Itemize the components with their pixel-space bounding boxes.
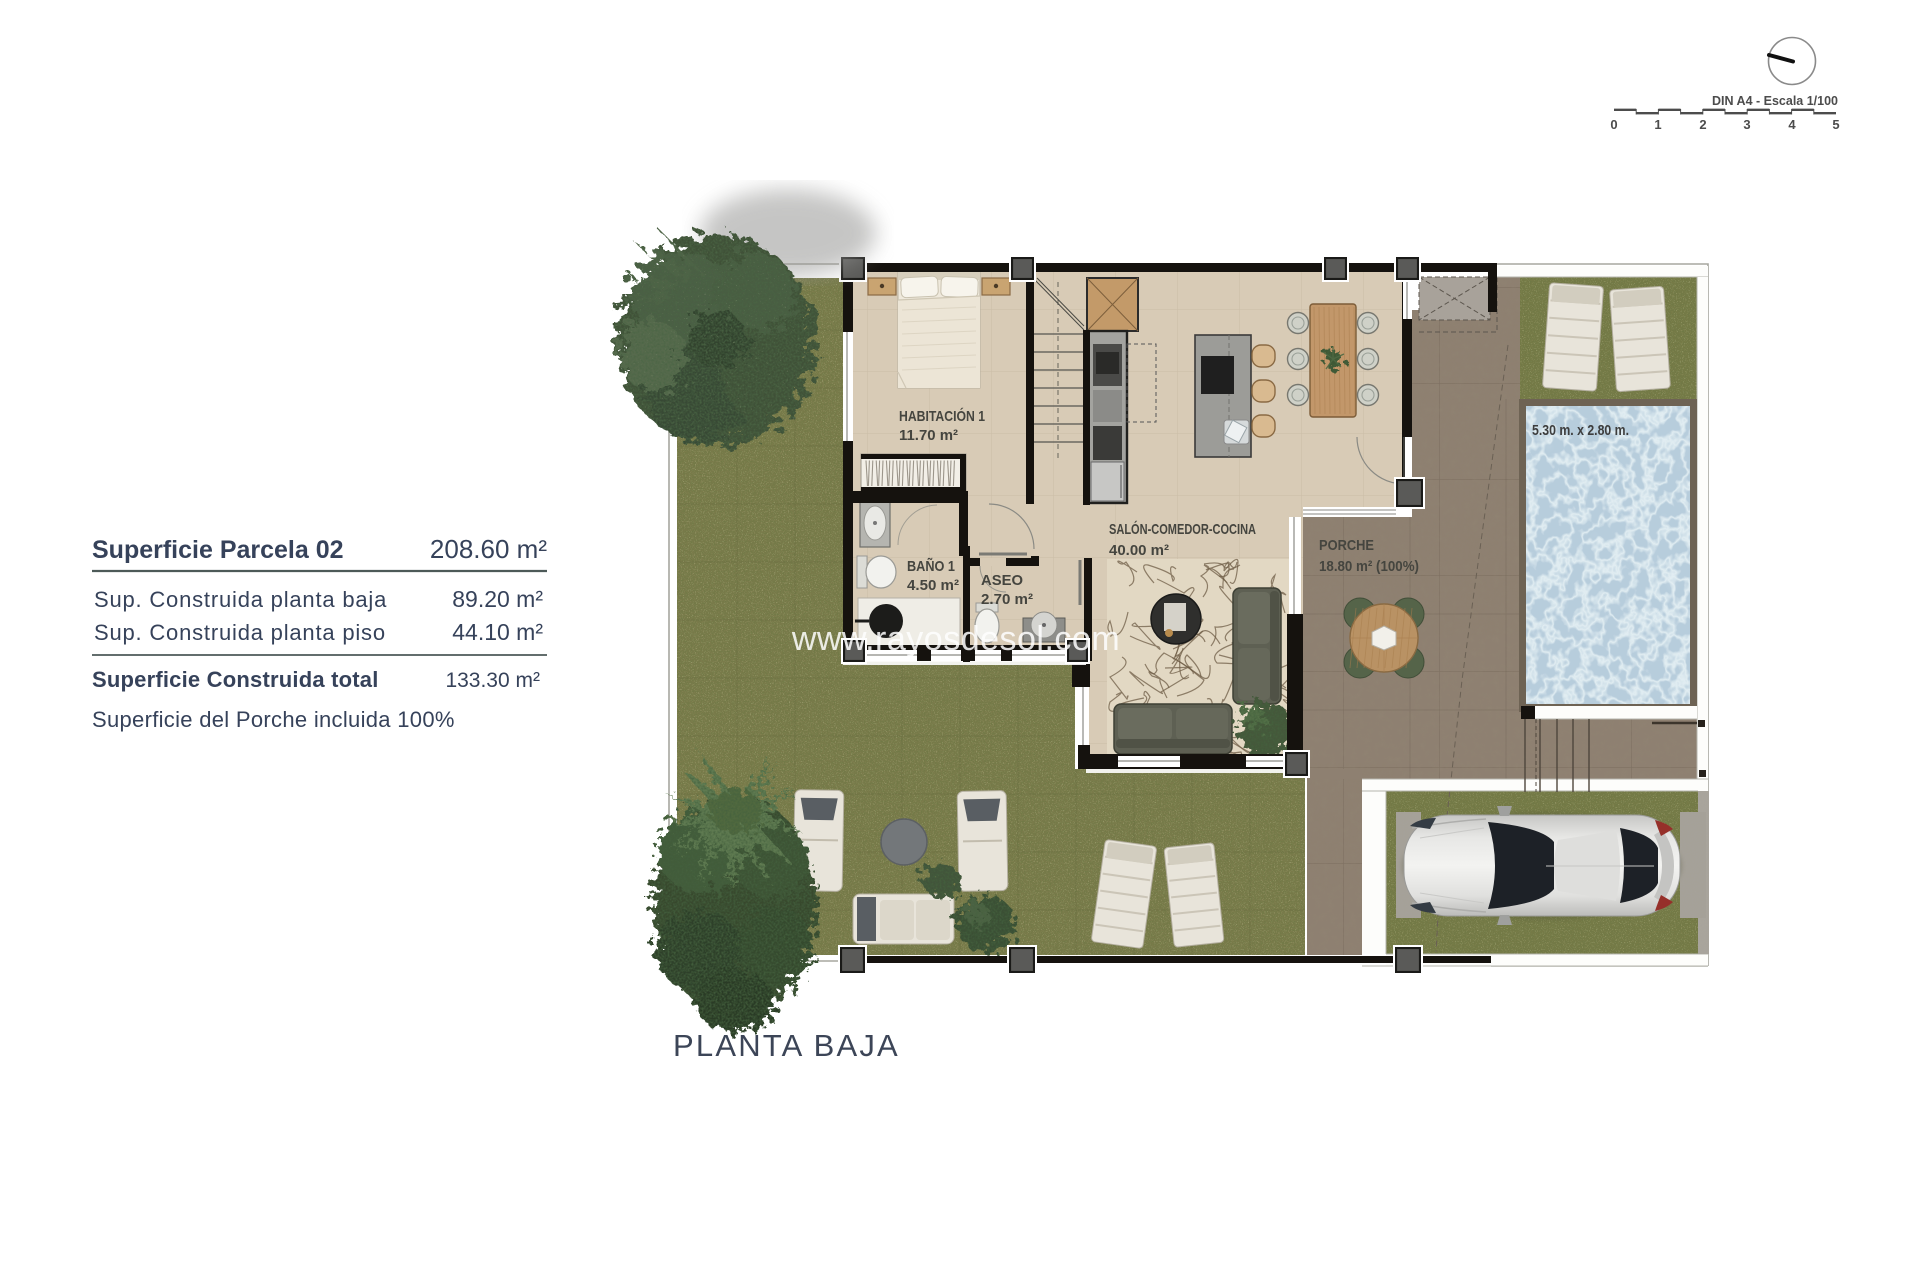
svg-text:Superficie Construida total: Superficie Construida total bbox=[92, 667, 379, 692]
svg-text:Superficie del Porche incluida: Superficie del Porche incluida 100% bbox=[92, 707, 455, 732]
svg-text:ASEO: ASEO bbox=[981, 572, 1023, 589]
svg-text:DIN A4 - Escala 1/100: DIN A4 - Escala 1/100 bbox=[1712, 94, 1838, 108]
svg-text:89.20 m²: 89.20 m² bbox=[452, 586, 543, 612]
svg-text:3: 3 bbox=[1743, 117, 1750, 132]
svg-text:Sup. Construida planta baja: Sup. Construida planta baja bbox=[94, 587, 387, 612]
svg-text:5.30 m. x 2.80 m.: 5.30 m. x 2.80 m. bbox=[1532, 422, 1629, 439]
svg-text:Superficie Parcela 02: Superficie Parcela 02 bbox=[92, 536, 344, 564]
svg-text:40.00 m²: 40.00 m² bbox=[1109, 542, 1169, 559]
svg-text:1: 1 bbox=[1654, 117, 1661, 132]
svg-text:BAÑO 1: BAÑO 1 bbox=[907, 557, 955, 575]
svg-text:HABITACIÓN 1: HABITACIÓN 1 bbox=[899, 407, 985, 425]
svg-text:208.60 m²: 208.60 m² bbox=[430, 534, 547, 564]
svg-text:4: 4 bbox=[1788, 117, 1796, 132]
svg-text:18.80 m² (100%): 18.80 m² (100%) bbox=[1319, 558, 1419, 575]
svg-text:2: 2 bbox=[1699, 117, 1706, 132]
svg-text:Sup. Construida planta piso: Sup. Construida planta piso bbox=[94, 620, 386, 645]
svg-text:PORCHE: PORCHE bbox=[1319, 537, 1374, 554]
svg-text:SALÓN-COMEDOR-COCINA: SALÓN-COMEDOR-COCINA bbox=[1109, 520, 1256, 538]
svg-text:www.rayosdesol.com: www.rayosdesol.com bbox=[791, 620, 1120, 658]
svg-text:133.30 m²: 133.30 m² bbox=[445, 669, 540, 692]
svg-text:PLANTA BAJA: PLANTA BAJA bbox=[673, 1028, 900, 1063]
svg-text:4.50 m²: 4.50 m² bbox=[907, 577, 959, 594]
svg-text:5: 5 bbox=[1832, 117, 1839, 132]
svg-text:44.10 m²: 44.10 m² bbox=[452, 619, 543, 645]
svg-text:2.70 m²: 2.70 m² bbox=[981, 591, 1033, 608]
svg-text:0: 0 bbox=[1610, 117, 1617, 132]
svg-text:11.70 m²: 11.70 m² bbox=[899, 427, 958, 444]
